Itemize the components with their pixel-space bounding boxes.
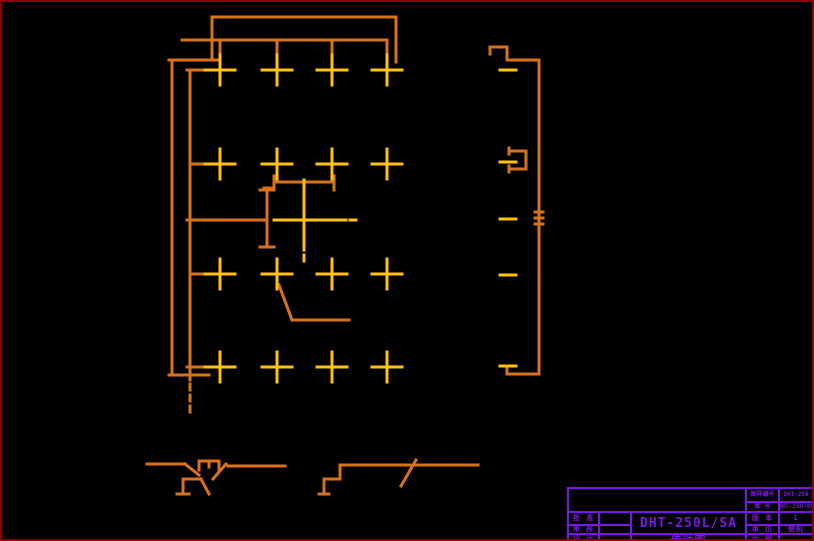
title-block: 图样编号 DHT-250 图 号 DHT-250-00 批 准 审 核 设 计 … — [567, 487, 814, 541]
schematic-line — [201, 479, 209, 494]
titleblock-model: DHT-250L/SA — [630, 511, 747, 535]
titleblock-scale-label: 比 例 — [745, 533, 780, 541]
drawing-canvas — [2, 2, 814, 541]
titleblock-empty-cell — [567, 487, 747, 513]
cad-viewport: 图样编号 DHT-250 图 号 DHT-250-00 批 准 审 核 设 计 … — [0, 0, 814, 541]
titleblock-scale-value — [778, 533, 814, 541]
schematic-line — [185, 464, 199, 475]
titleblock-drawing-title: 传动图 — [630, 533, 747, 541]
titleblock-design-label: 设 计 — [567, 533, 600, 541]
titleblock-design-sign — [598, 533, 632, 541]
schematic-line — [279, 285, 292, 320]
